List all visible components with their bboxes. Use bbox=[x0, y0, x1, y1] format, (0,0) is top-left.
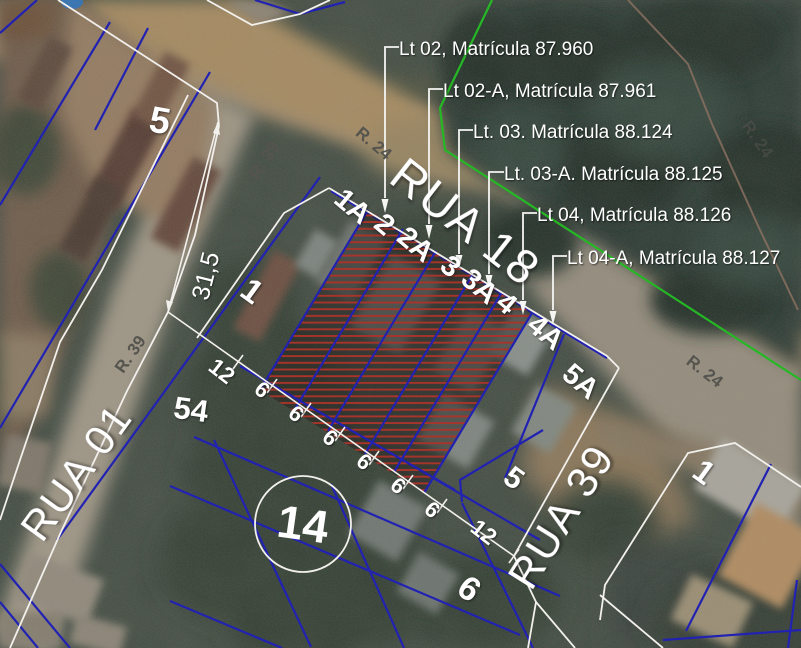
svg-text:Lt. 03-A. Matrícula 88.125: Lt. 03-A. Matrícula 88.125 bbox=[504, 164, 723, 185]
svg-text:54: 54 bbox=[172, 390, 212, 430]
svg-text:Lt 02-A, Matrícula 87.961: Lt 02-A, Matrícula 87.961 bbox=[443, 81, 656, 102]
svg-text:Lt. 03. Matrícula 88.124: Lt. 03. Matrícula 88.124 bbox=[473, 122, 673, 143]
svg-text:Lt 04-A, Matrícula 88.127: Lt 04-A, Matrícula 88.127 bbox=[567, 248, 780, 269]
svg-text:Lt 04, Matrícula 88.126: Lt 04, Matrícula 88.126 bbox=[537, 205, 731, 226]
svg-text:14: 14 bbox=[274, 495, 332, 554]
svg-text:Lt 02, Matrícula 87.960: Lt 02, Matrícula 87.960 bbox=[399, 39, 593, 60]
